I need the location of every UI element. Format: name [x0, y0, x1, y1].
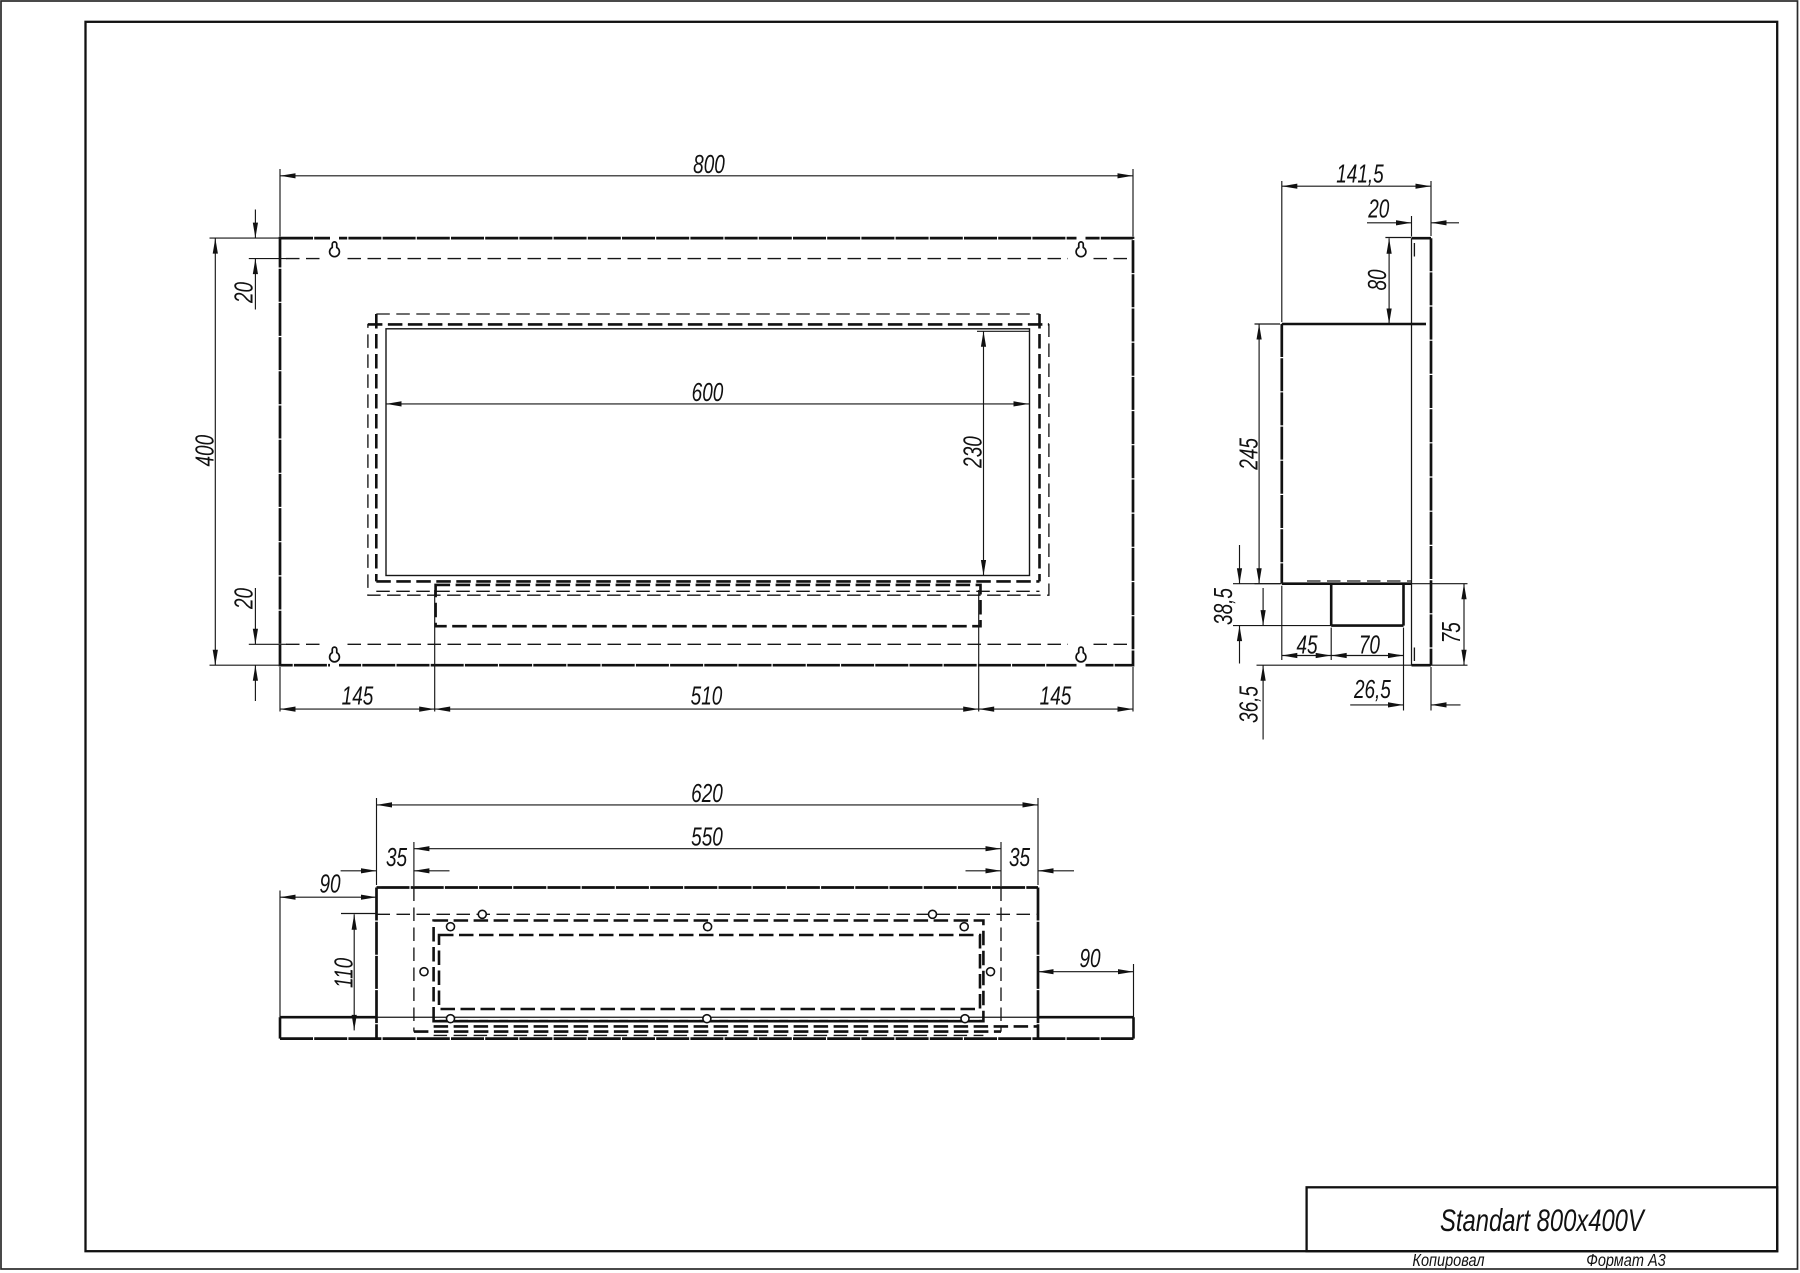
- svg-text:600: 600: [692, 377, 724, 407]
- svg-text:141,5: 141,5: [1336, 159, 1384, 189]
- svg-text:Формат А3: Формат А3: [1586, 1251, 1666, 1271]
- svg-text:90: 90: [1079, 943, 1100, 973]
- svg-text:110: 110: [329, 957, 359, 988]
- svg-text:620: 620: [691, 778, 723, 808]
- svg-text:80: 80: [1362, 269, 1392, 290]
- svg-text:36,5: 36,5: [1233, 686, 1263, 723]
- svg-text:20: 20: [229, 588, 259, 610]
- svg-text:35: 35: [386, 842, 407, 872]
- svg-text:20: 20: [1367, 193, 1389, 223]
- svg-text:145: 145: [342, 681, 374, 711]
- svg-text:510: 510: [691, 681, 723, 711]
- svg-text:35: 35: [1009, 842, 1030, 872]
- svg-text:20: 20: [229, 282, 259, 304]
- svg-text:800: 800: [693, 149, 725, 179]
- svg-text:45: 45: [1296, 629, 1317, 659]
- svg-text:70: 70: [1359, 629, 1380, 659]
- svg-text:400: 400: [190, 435, 220, 467]
- svg-text:550: 550: [691, 821, 723, 851]
- svg-text:90: 90: [319, 869, 340, 899]
- svg-text:Копировал: Копировал: [1412, 1251, 1484, 1271]
- svg-text:38,5: 38,5: [1208, 588, 1238, 625]
- svg-text:75: 75: [1436, 622, 1466, 643]
- svg-text:Standart 800x400V: Standart 800x400V: [1440, 1203, 1646, 1238]
- svg-text:26,5: 26,5: [1353, 674, 1391, 704]
- svg-text:230: 230: [957, 436, 987, 469]
- svg-text:245: 245: [1233, 438, 1263, 471]
- svg-text:145: 145: [1040, 681, 1072, 711]
